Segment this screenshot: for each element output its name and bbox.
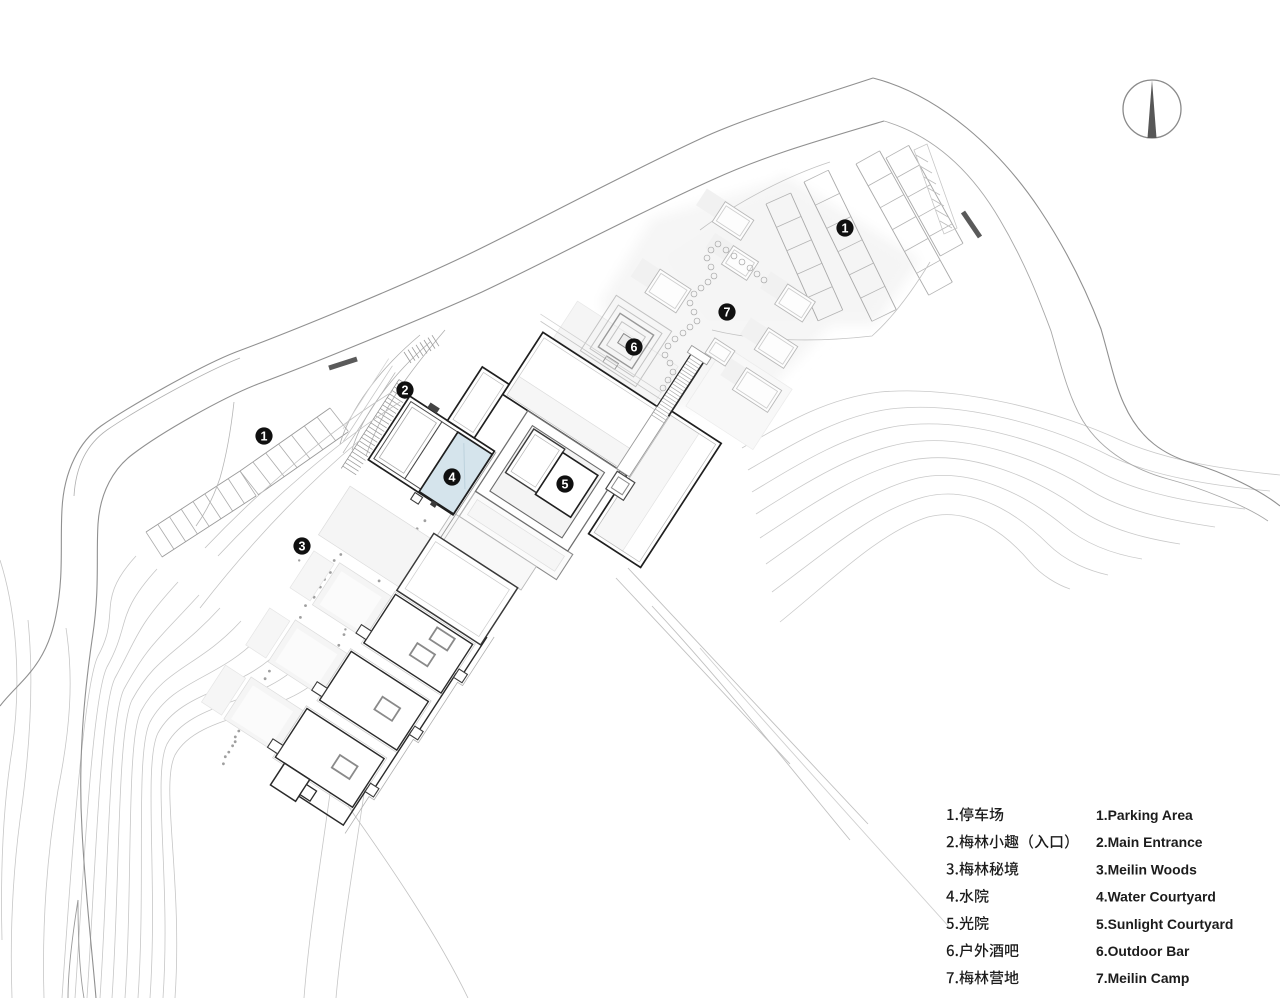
svg-text:2.Main Entrance: 2.Main Entrance [1096,834,1203,850]
svg-text:1: 1 [261,429,268,443]
svg-text:3.Meilin Woods: 3.Meilin Woods [1096,861,1197,877]
svg-text:1: 1 [842,221,849,235]
svg-text:2: 2 [402,383,409,397]
svg-text:7.Meilin Camp: 7.Meilin Camp [1096,970,1189,986]
svg-text:7: 7 [724,305,731,319]
svg-text:4: 4 [449,470,456,484]
svg-text:4.Water Courtyard: 4.Water Courtyard [1096,889,1216,905]
svg-text:1.Parking Area: 1.Parking Area [1096,807,1193,823]
svg-text:6.Outdoor Bar: 6.Outdoor Bar [1096,943,1190,959]
svg-text:5: 5 [562,477,569,491]
svg-text:3: 3 [299,539,306,553]
svg-text:6: 6 [631,340,638,354]
svg-text:5.Sunlight Courtyard: 5.Sunlight Courtyard [1096,916,1233,932]
